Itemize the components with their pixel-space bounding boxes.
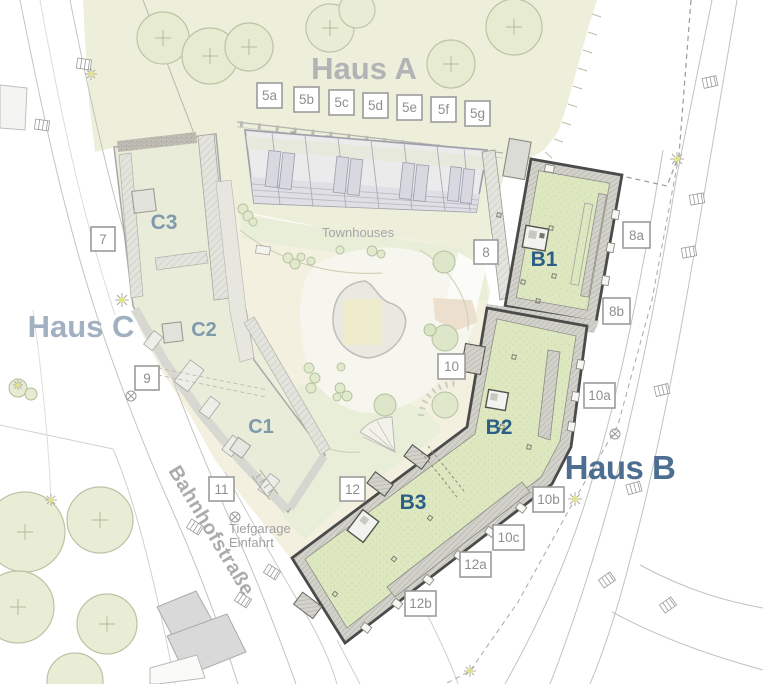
svg-text:8: 8 [482, 245, 490, 260]
svg-text:5b: 5b [299, 92, 314, 107]
svg-text:B3: B3 [400, 491, 427, 514]
svg-text:7: 7 [99, 232, 107, 247]
svg-text:12b: 12b [409, 596, 432, 611]
svg-text:11: 11 [214, 482, 228, 497]
svg-text:8a: 8a [629, 228, 645, 243]
svg-text:5c: 5c [334, 95, 349, 110]
svg-text:Townhouses: Townhouses [322, 225, 395, 240]
svg-text:C3: C3 [151, 211, 178, 234]
svg-text:Einfahrt: Einfahrt [229, 535, 274, 550]
svg-text:8b: 8b [609, 304, 624, 319]
svg-text:C1: C1 [248, 416, 274, 438]
svg-text:B1: B1 [531, 248, 558, 271]
svg-text:Haus C: Haus C [28, 309, 135, 344]
svg-text:Tiefgarage: Tiefgarage [229, 521, 291, 536]
svg-text:10: 10 [444, 359, 459, 374]
svg-text:12a: 12a [464, 557, 487, 572]
svg-text:10c: 10c [498, 530, 520, 545]
svg-text:Haus A: Haus A [311, 51, 417, 86]
svg-text:5d: 5d [368, 98, 383, 113]
svg-text:B2: B2 [486, 416, 513, 439]
svg-text:5g: 5g [470, 106, 485, 121]
svg-text:5f: 5f [438, 102, 450, 117]
svg-text:5a: 5a [262, 88, 278, 103]
svg-text:9: 9 [143, 371, 151, 386]
svg-text:10a: 10a [588, 388, 611, 403]
svg-text:C2: C2 [191, 319, 217, 341]
svg-text:5e: 5e [402, 100, 417, 115]
svg-text:12: 12 [345, 482, 360, 497]
svg-text:Haus B: Haus B [565, 449, 676, 486]
svg-text:10b: 10b [537, 492, 560, 507]
